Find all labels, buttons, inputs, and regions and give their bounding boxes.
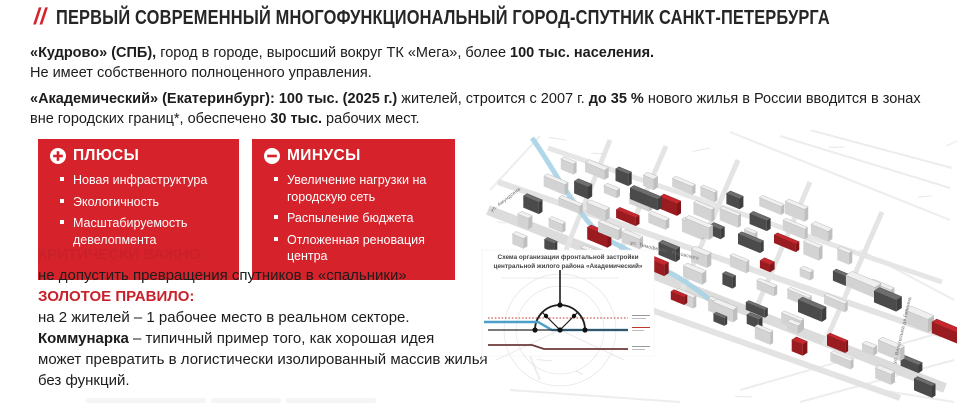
kommunarka-line3: без функций. bbox=[38, 370, 498, 391]
pluses-item-2: Экологичность bbox=[73, 194, 159, 211]
list-item: Распыление бюджета bbox=[274, 210, 445, 227]
kommunarka-bold: Коммунарка bbox=[38, 330, 129, 347]
critical-text: не допустить превращения спутников в «сп… bbox=[38, 265, 498, 286]
inset-caption-line1: Схема организации фронтальной застройки bbox=[497, 253, 638, 261]
square-bullet-icon bbox=[60, 177, 64, 181]
pluses-item-1: Новая инфраструктура bbox=[73, 172, 207, 189]
golden-rule-text: на 2 жителей – 1 рабочее место в реально… bbox=[38, 307, 498, 328]
minus-circle-icon bbox=[264, 148, 280, 164]
kudrovo-line2: Не имеет собственного полноценного управ… bbox=[30, 65, 372, 81]
square-bullet-icon bbox=[274, 215, 278, 219]
akadem-bold1: «Академический» (Екатеринбург): 100 тыс.… bbox=[30, 91, 397, 107]
kudrovo-bold2: 100 тыс. населения. bbox=[510, 45, 654, 61]
masterplan-svg: ул. Амундсена ул. Тимофеева - Ресовского… bbox=[480, 130, 957, 405]
minuses-item-2: Распыление бюджета bbox=[287, 210, 413, 227]
title-row: // ПЕРВЫЙ СОВРЕМЕННЫЙ МНОГОФУНКЦИОНАЛЬНЫ… bbox=[34, 5, 957, 30]
pluses-title: ПЛЮСЫ bbox=[73, 147, 139, 165]
footnote-fragment bbox=[86, 398, 206, 403]
akadem-text1: жителей, строится с 2007 г. bbox=[397, 91, 588, 107]
kommunarka-rest: – типичный пример того, как хорошая идея bbox=[129, 330, 434, 347]
minuses-item-1: Увеличение нагрузки на городскую сеть bbox=[287, 172, 445, 205]
plus-circle-icon bbox=[50, 148, 66, 164]
footnote-fragment bbox=[286, 398, 376, 403]
kommunarka-line2: может превратить в логистически изолиров… bbox=[38, 349, 498, 370]
paragraph-kudrovo: «Кудрово» (СПБ), город в городе, выросши… bbox=[30, 44, 680, 83]
square-bullet-icon bbox=[274, 237, 278, 241]
square-bullet-icon bbox=[60, 199, 64, 203]
pluses-header: ПЛЮСЫ bbox=[50, 147, 229, 165]
slide: // ПЕРВЫЙ СОВРЕМЕННЫЙ МНОГОФУНКЦИОНАЛЬНЫ… bbox=[0, 0, 957, 405]
square-bullet-icon bbox=[60, 220, 64, 224]
double-slash-icon: // bbox=[32, 5, 48, 28]
page-title: ПЕРВЫЙ СОВРЕМЕННЫЙ МНОГОФУНКЦИОНАЛЬНЫЙ Г… bbox=[56, 7, 830, 30]
pluses-list: Новая инфраструктура Экологичность Масшт… bbox=[50, 172, 229, 248]
list-item: Новая инфраструктура bbox=[60, 172, 229, 189]
footnote-remnant bbox=[86, 398, 376, 403]
golden-rule-heading: ЗОЛОТОЕ ПРАВИЛО: bbox=[38, 286, 498, 307]
list-item: Экологичность bbox=[60, 194, 229, 211]
kommunarka-line1: Коммунарка – типичный пример того, как х… bbox=[38, 328, 498, 349]
akadem-text3: рабочих мест. bbox=[322, 111, 420, 127]
inset-caption-line2: центральной жилого района «Академический… bbox=[494, 262, 643, 270]
masterplan-image: ул. Амундсена ул. Тимофеева - Ресовского… bbox=[480, 130, 957, 405]
footnote-fragment bbox=[211, 398, 281, 403]
inset-scheme-card: Схема организации фронтальной застройки … bbox=[482, 250, 654, 386]
kudrovo-text: город в городе, выросший вокруг ТК «Мега… bbox=[156, 45, 510, 61]
minuses-header: МИНУСЫ bbox=[264, 147, 445, 165]
akadem-bold3: 30 тыс. bbox=[270, 111, 322, 127]
bottom-statements: КРИТИЧЕСКИ ВАЖНО: не допустить превращен… bbox=[38, 244, 498, 391]
minuses-title: МИНУСЫ bbox=[287, 147, 361, 165]
akadem-bold2: до 35 % bbox=[589, 91, 644, 107]
square-bullet-icon bbox=[274, 177, 278, 181]
paragraph-akademichesky: «Академический» (Екатеринбург): 100 тыс.… bbox=[30, 90, 946, 129]
critical-heading: КРИТИЧЕСКИ ВАЖНО: bbox=[38, 244, 498, 265]
list-item: Увеличение нагрузки на городскую сеть bbox=[274, 172, 445, 205]
street-label-amundsena: ул. Амундсена bbox=[490, 186, 522, 213]
kudrovo-bold: «Кудрово» (СПБ), bbox=[30, 45, 156, 61]
